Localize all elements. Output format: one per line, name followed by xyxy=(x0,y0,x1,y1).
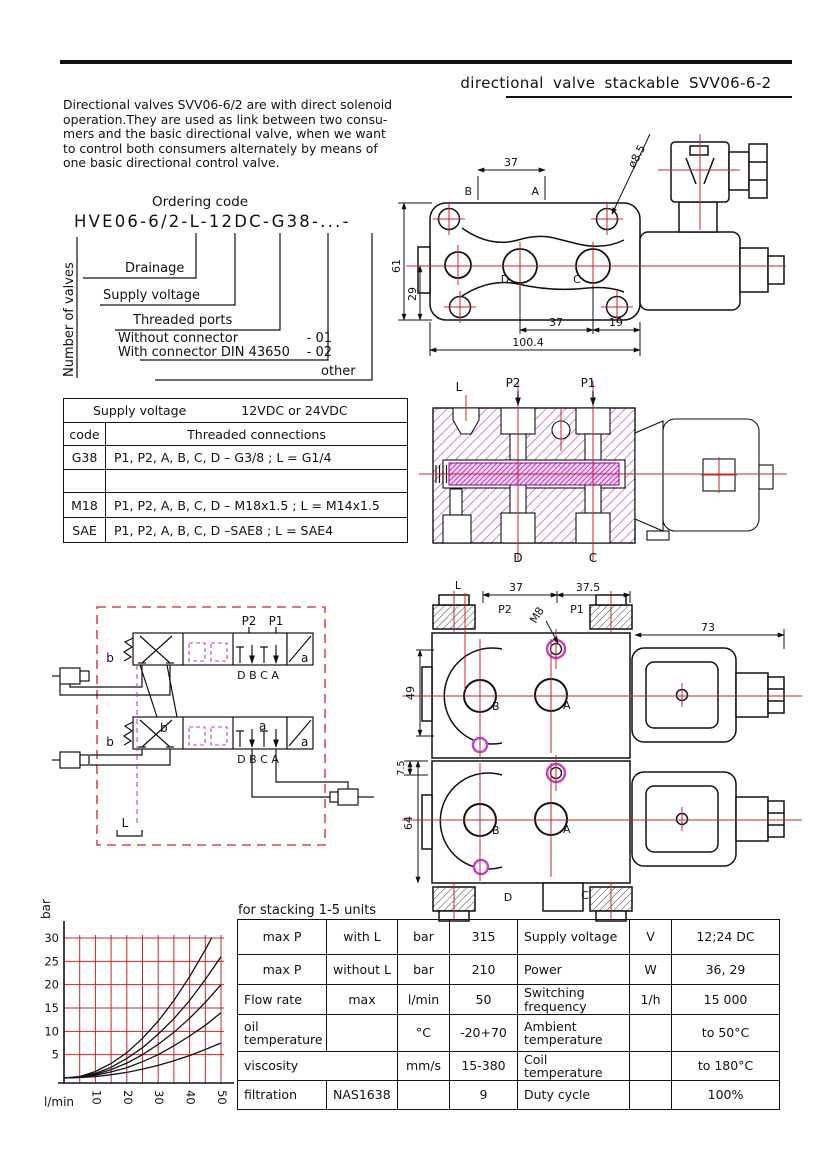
cross-section-drawing: L P2 P1 D C xyxy=(413,373,793,568)
top-rule xyxy=(60,60,792,64)
spec-cell xyxy=(398,1081,450,1110)
bottom-tab xyxy=(543,883,583,911)
with-connector-code: - 02 xyxy=(307,345,332,360)
spec-cell: W xyxy=(630,955,672,985)
hydraulic-schematic: P2 P1 b a D B C A b a b a D B C A L xyxy=(52,583,397,888)
x-tick-label: 30 xyxy=(152,1090,166,1105)
connections-header: Threaded connections xyxy=(106,423,408,446)
dim-37-bottom: 37 xyxy=(549,316,563,329)
with-connector-label: With connector DIN 43650 xyxy=(118,345,290,360)
body2-tab xyxy=(422,795,432,849)
spec-cell: oil temperature xyxy=(238,1015,327,1052)
spec-cell xyxy=(630,1052,672,1081)
threaded-connections-table: Supply voltage 12VDC or 24VDC code Threa… xyxy=(63,398,408,543)
intro-paragraph: Directional valves SVV06-6/2 are with di… xyxy=(63,98,415,171)
label-m8: M8 xyxy=(527,605,547,626)
conn-cell xyxy=(106,470,408,493)
spec-cell: 1/h xyxy=(630,985,672,1015)
spec-cell: to 180°C xyxy=(672,1052,780,1081)
stacked-front-drawing: L 37 37.5 P2 P1 M8 73 49 7.5 64 B A B A … xyxy=(388,563,808,923)
label-a1: A xyxy=(563,699,571,712)
line-v1-v2 xyxy=(140,665,157,717)
spec-cell: Duty cycle xyxy=(518,1081,630,1110)
spec-cell: 15 000 xyxy=(672,985,780,1015)
dim-100-4: 100.4 xyxy=(512,336,544,349)
datasheet-page: directional valve stackable SVV06-6-2 Di… xyxy=(0,0,826,1169)
schematic-ports1: D B C A xyxy=(237,669,279,682)
label-p1: P1 xyxy=(570,603,584,616)
schematic-a2: a xyxy=(301,735,308,749)
x-axis-label: l/min xyxy=(44,1095,74,1109)
schematic-b2: b xyxy=(106,735,114,749)
other-label: other xyxy=(321,364,356,379)
specs-table: max P with L bar 315 Supply voltage V 12… xyxy=(237,919,780,1110)
without-connector-code: - 01 xyxy=(307,331,332,346)
y-tick-label: 20 xyxy=(44,978,59,992)
drainage-label: Drainage xyxy=(125,261,184,276)
x-tick-label: 20 xyxy=(121,1090,135,1105)
spec-cell: 210 xyxy=(450,955,518,985)
code-header: code xyxy=(64,423,106,446)
dim-19: 19 xyxy=(609,316,623,329)
label-p1: P1 xyxy=(581,376,596,390)
small-hole-2 xyxy=(474,860,488,874)
spec-cell: bar xyxy=(398,955,450,985)
x-tick-label: 50 xyxy=(215,1090,229,1105)
y-tick-label: 30 xyxy=(44,931,59,945)
label-p2: P2 xyxy=(498,603,512,616)
spec-cell: bar xyxy=(398,920,450,955)
label-l: L xyxy=(456,380,463,394)
dim-37: 37 xyxy=(509,581,523,594)
spec-cell: max xyxy=(327,985,398,1015)
with-connector-row: With connector DIN 43650 - 02 xyxy=(118,345,332,360)
spec-cell xyxy=(630,1015,672,1052)
port-label-c: C xyxy=(573,273,581,286)
solenoid-coil xyxy=(640,232,740,310)
without-connector-label: Without connector xyxy=(118,331,238,346)
spec-cell: viscosity xyxy=(238,1052,398,1081)
spec-cell: max P xyxy=(238,955,327,985)
label-p2: P2 xyxy=(506,376,521,390)
dim-7-5: 7.5 xyxy=(396,760,407,775)
x-tick-label: 10 xyxy=(89,1090,103,1105)
connector-screw xyxy=(690,146,708,155)
spec-cell: l/min xyxy=(398,985,450,1015)
intro-line: Directional valves SVV06-6/2 are with di… xyxy=(63,98,415,113)
line-v2-consumer3b xyxy=(276,749,348,789)
spec-cell: °C xyxy=(398,1015,450,1052)
connector-plug xyxy=(729,152,749,190)
y-tick-label: 10 xyxy=(44,1024,59,1038)
spec-cell: 50 xyxy=(450,985,518,1015)
supply-voltage-row: Supply voltage 12VDC or 24VDC xyxy=(64,399,408,423)
top-view-drawing: B A D C 37 ø8.5 61 29 37 19 100.4 xyxy=(388,118,792,373)
consumer-port-right xyxy=(330,789,374,805)
spec-cell xyxy=(630,1081,672,1110)
spec-cell: 12;24 DC xyxy=(672,920,780,955)
threaded-ports-label: Threaded ports xyxy=(133,313,232,328)
x-tick-label: 40 xyxy=(184,1090,198,1105)
specs-caption: for stacking 1-5 units xyxy=(238,903,376,918)
y-tick-label: 25 xyxy=(44,954,59,968)
valve1-spring xyxy=(124,638,133,661)
code-cell xyxy=(64,470,106,493)
intro-line: one basic directional control valve. xyxy=(63,156,415,171)
solenoid-1-plug xyxy=(736,673,768,717)
spec-cell: 9 xyxy=(450,1081,518,1110)
solenoid-adapter xyxy=(635,421,663,531)
label-d: D xyxy=(504,891,512,904)
supply-value: 12VDC or 24VDC xyxy=(241,403,347,418)
spec-cell: 15-380 xyxy=(450,1052,518,1081)
spec-cell: V xyxy=(630,920,672,955)
dim-37-top: 37 xyxy=(504,156,518,169)
pressure-flow-chart: 302520151051020304050barl/min xyxy=(38,893,243,1133)
label-l: L xyxy=(455,579,462,592)
supply-label: Supply voltage xyxy=(93,403,186,418)
intro-line: operation.They are used as link between … xyxy=(63,113,415,128)
port-arrows xyxy=(518,391,593,405)
connector-ribs xyxy=(749,144,767,198)
dim-dia-8-5: ø8.5 xyxy=(625,143,648,171)
schematic-b1: b xyxy=(106,651,114,665)
spec-cell: Coil temperature xyxy=(518,1052,630,1081)
solenoid-end-cap xyxy=(740,248,768,292)
spec-cell: Switching frequency xyxy=(518,985,630,1015)
dim-49: 49 xyxy=(404,686,417,700)
schematic-p2: P2 xyxy=(242,614,257,628)
spec-cell: to 50°C xyxy=(672,1015,780,1052)
supply-voltage-label: Supply voltage xyxy=(103,288,200,303)
dim-73: 73 xyxy=(701,621,715,634)
intro-line: mers and the basic directional valve, wh… xyxy=(63,127,415,142)
label-b1: B xyxy=(492,700,500,713)
dim-64: 64 xyxy=(402,816,415,830)
drain-port xyxy=(443,515,471,543)
spec-cell: with L xyxy=(327,920,398,955)
valve2-spring xyxy=(124,722,133,745)
spec-cell: Ambient temperature xyxy=(518,1015,630,1052)
bleed-screw xyxy=(647,531,669,540)
line-v1-v2b xyxy=(167,665,177,717)
y-tick-label: 5 xyxy=(52,1048,59,1062)
solenoid-1-ribs xyxy=(768,677,784,713)
conn-cell: P1, P2, A, B, C, D – M18x1.5 ; L = M14x1… xyxy=(106,493,408,518)
solenoid-nut xyxy=(768,256,784,284)
schematic-a1: a xyxy=(301,651,308,665)
body1-tab xyxy=(422,667,432,721)
schematic-a2-inner: a xyxy=(259,719,266,733)
line-consumer2-v2b xyxy=(90,749,170,765)
spec-cell: 315 xyxy=(450,920,518,955)
schematic-l: L xyxy=(122,816,129,830)
consumer-port-left-2 xyxy=(52,752,89,768)
code-cell: SAE xyxy=(64,518,106,543)
spec-cell: filtration xyxy=(238,1081,327,1110)
solenoid-nut xyxy=(759,465,773,489)
page-title: directional valve stackable SVV06-6-2 xyxy=(440,74,792,92)
drain-bracket xyxy=(117,830,142,836)
label-c: C xyxy=(581,889,589,902)
y-tick-label: 15 xyxy=(44,1001,59,1015)
spec-cell: -20+70 xyxy=(450,1015,518,1052)
spec-cell: 100% xyxy=(672,1081,780,1110)
dim-61: 61 xyxy=(390,259,403,273)
port-label-b: B xyxy=(464,185,472,198)
spec-cell: without L xyxy=(327,955,398,985)
port-label-a: A xyxy=(531,185,539,198)
number-of-valves-label: Number of valves xyxy=(62,227,77,377)
conn-cell: P1, P2, A, B, C, D –SAE8 ; L = SAE4 xyxy=(106,518,408,543)
spec-cell: NAS1638 xyxy=(327,1081,398,1110)
spec-cell: 36, 29 xyxy=(672,955,780,985)
spec-cell: Flow rate xyxy=(238,985,327,1015)
line-consumer2-v2 xyxy=(90,749,142,755)
schematic-b2-inner: b xyxy=(160,721,168,735)
dim-37-5: 37.5 xyxy=(576,581,601,594)
valve-body-2 xyxy=(432,761,630,883)
label-b2: B xyxy=(492,824,500,837)
label-a2: A xyxy=(563,823,571,836)
y-axis-label: bar xyxy=(39,899,53,919)
title-underline xyxy=(506,96,792,98)
spec-cell: Supply voltage xyxy=(518,920,630,955)
spec-cell: Power xyxy=(518,955,630,985)
intro-line: to control both consumers alternately by… xyxy=(63,142,415,157)
schematic-ports2: D B C A xyxy=(237,753,279,766)
dim-29: 29 xyxy=(406,287,419,301)
consumer-port-left-1 xyxy=(52,668,89,684)
solenoid-2-plug xyxy=(736,797,768,841)
without-connector-row: Without connector - 01 xyxy=(118,331,332,346)
ordering-code-heading: Ordering code xyxy=(152,194,248,210)
schematic-p1: P1 xyxy=(269,614,284,628)
connector-stem xyxy=(679,202,717,232)
conn-cell: P1, P2, A, B, C, D – G3/8 ; L = G1/4 xyxy=(106,446,408,470)
code-cell: M18 xyxy=(64,493,106,518)
drain-neck xyxy=(450,489,462,515)
code-cell: G38 xyxy=(64,446,106,470)
spec-cell: max P xyxy=(238,920,327,955)
port-label-d: D xyxy=(501,273,509,286)
spec-cell xyxy=(327,1015,398,1052)
spec-cell: mm/s xyxy=(398,1052,450,1081)
solenoid-2-ribs xyxy=(768,801,784,837)
